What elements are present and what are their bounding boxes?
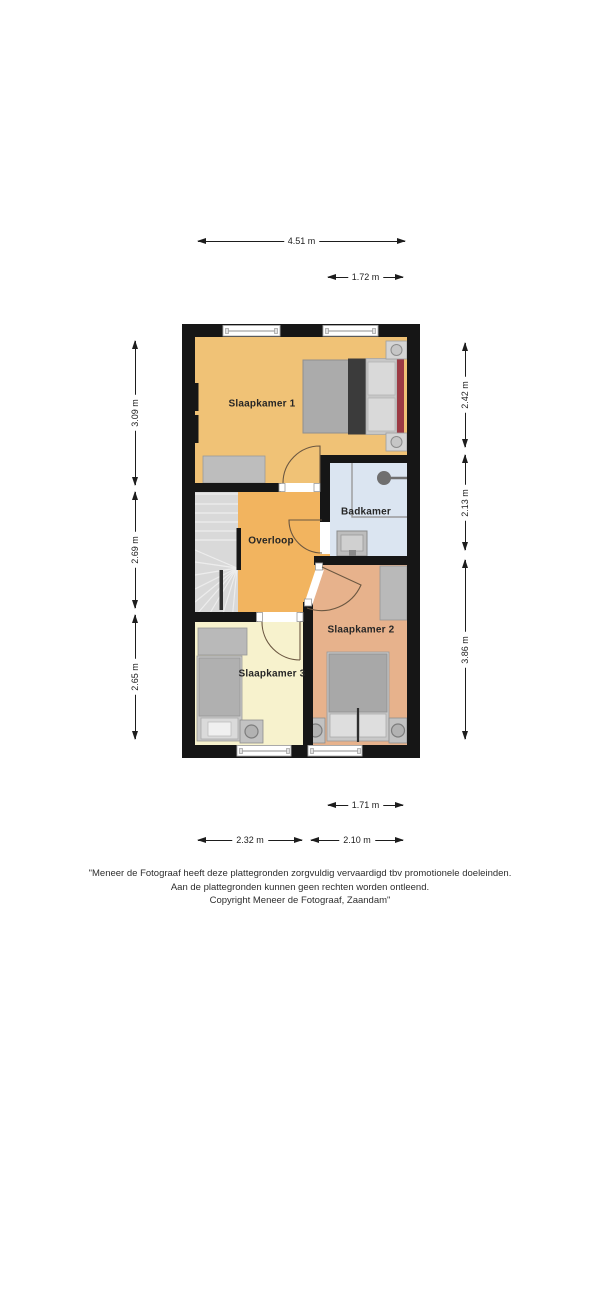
dimension-left-middle: 2.69 m	[130, 491, 140, 609]
wardrobe-slaapkamer-2	[380, 566, 407, 620]
wall-mark-1	[195, 383, 199, 411]
sink-icon	[337, 531, 367, 556]
disclaimer-line-1: "Meneer de Fotograaf heeft deze plattegr…	[0, 867, 600, 881]
room-label-slaapkamer-3: Slaapkamer 3	[239, 669, 306, 680]
floor-plan-page: Slaapkamer 1 Overloop Badkamer Slaapkame…	[0, 0, 600, 1299]
bed-slaapkamer-1	[303, 359, 404, 435]
dresser-slaapkamer-1	[203, 456, 265, 483]
dimension-right-middle: 2.13 m	[460, 454, 470, 551]
dimension-left-middle-label: 2.69 m	[130, 532, 140, 568]
dimension-top-right-width: 1.72 m	[327, 272, 404, 282]
disclaimer-line-2: Aan de plattegronden kunnen geen rechten…	[0, 881, 600, 895]
wardrobe-slaapkamer-3	[198, 628, 247, 655]
room-label-slaapkamer-2: Slaapkamer 2	[328, 625, 395, 636]
stairs-railing	[237, 528, 242, 570]
nightstand-slaapkamer-1-bottom	[386, 433, 407, 451]
dimension-right-top-label: 2.42 m	[460, 377, 470, 413]
dimension-bottom-inner-right: 1.71 m	[327, 800, 404, 810]
bed-slaapkamer-3	[197, 656, 242, 741]
dimension-left-bottom: 2.65 m	[130, 614, 140, 740]
disclaimer-line-3: Copyright Meneer de Fotograaf, Zaandam"	[0, 894, 600, 908]
dimension-bottom-right-label: 2.10 m	[339, 835, 375, 845]
nightstand-slaapkamer-3	[240, 720, 263, 743]
dimension-right-middle-label: 2.13 m	[460, 485, 470, 521]
nightstand-slaapkamer-1-top	[386, 341, 407, 359]
dimension-left-top: 3.09 m	[130, 340, 140, 486]
dimension-top-width-label: 4.51 m	[284, 236, 320, 246]
nightstand-slaapkamer-2-right	[389, 718, 407, 743]
dimension-left-bottom-label: 2.65 m	[130, 659, 140, 695]
room-label-slaapkamer-1: Slaapkamer 1	[229, 399, 296, 410]
dimension-bottom-left: 2.32 m	[197, 835, 303, 845]
floor-plan-drawing	[182, 324, 420, 758]
dimension-right-bottom-label: 3.86 m	[460, 632, 470, 668]
dimension-bottom-right: 2.10 m	[310, 835, 404, 845]
wall-mark-2	[195, 415, 199, 443]
bed-slaapkamer-2	[327, 652, 389, 742]
dimension-right-top: 2.42 m	[460, 342, 470, 448]
disclaimer: "Meneer de Fotograaf heeft deze plattegr…	[0, 867, 600, 908]
dimension-bottom-inner-right-label: 1.71 m	[348, 800, 384, 810]
dimension-top-width: 4.51 m	[197, 236, 406, 246]
dimension-left-top-label: 3.09 m	[130, 395, 140, 431]
dimension-top-right-width-label: 1.72 m	[348, 272, 384, 282]
room-label-badkamer: Badkamer	[341, 507, 391, 518]
stairs-railing-lower	[220, 570, 224, 610]
dimension-bottom-left-label: 2.32 m	[232, 835, 268, 845]
dimension-right-bottom: 3.86 m	[460, 559, 470, 740]
room-label-overloop: Overloop	[248, 536, 294, 547]
